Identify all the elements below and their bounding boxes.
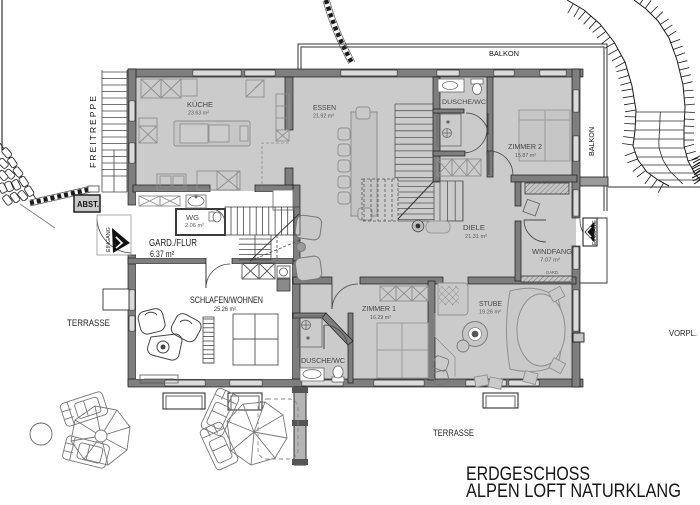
svg-text:EINGANG: EINGANG bbox=[592, 220, 598, 245]
svg-text:23.63 m²: 23.63 m² bbox=[188, 111, 209, 117]
svg-text:25.26 m²: 25.26 m² bbox=[214, 306, 237, 313]
svg-text:ALPEN LOFT NATURKLANG: ALPEN LOFT NATURKLANG bbox=[466, 481, 681, 500]
svg-text:15.87 m²: 15.87 m² bbox=[515, 153, 536, 159]
svg-text:BALKON: BALKON bbox=[489, 49, 519, 58]
svg-text:21.31 m²: 21.31 m² bbox=[465, 234, 487, 240]
svg-text:FREITREPPE: FREITREPPE bbox=[88, 96, 98, 168]
svg-text:WG: WG bbox=[186, 213, 199, 222]
svg-text:DUSCHE/WC: DUSCHE/WC bbox=[301, 356, 346, 365]
svg-text:STUBE: STUBE bbox=[479, 299, 502, 308]
svg-text:ABST.: ABST. bbox=[77, 200, 99, 209]
svg-text:6.37 m²: 6.37 m² bbox=[150, 249, 174, 259]
svg-text:ZIMMER 2: ZIMMER 2 bbox=[508, 142, 542, 151]
svg-text:DIELE: DIELE bbox=[463, 223, 485, 232]
svg-text:ZIMMER 1: ZIMMER 1 bbox=[362, 304, 396, 313]
svg-text:19.26 m²: 19.26 m² bbox=[479, 310, 501, 316]
svg-text:DUSCHE/WC: DUSCHE/WC bbox=[442, 99, 486, 106]
svg-text:WINDFANG: WINDFANG bbox=[532, 247, 572, 256]
svg-text:VORPL.: VORPL. bbox=[669, 328, 697, 338]
svg-text:SCHLAFEN/WOHNEN: SCHLAFEN/WOHNEN bbox=[190, 295, 263, 305]
svg-text:KÜCHE: KÜCHE bbox=[187, 100, 213, 109]
svg-text:BALKON: BALKON bbox=[587, 127, 596, 156]
svg-text:TERRASSE: TERRASSE bbox=[433, 428, 474, 438]
svg-text:16.29 m²: 16.29 m² bbox=[370, 315, 391, 321]
svg-text:TERRASSE: TERRASSE bbox=[67, 317, 110, 328]
svg-text:21.92 m²: 21.92 m² bbox=[313, 114, 334, 120]
svg-text:GARD.: GARD. bbox=[546, 270, 559, 275]
svg-text:7.07 m²: 7.07 m² bbox=[540, 258, 560, 264]
svg-text:2.06 m²: 2.06 m² bbox=[185, 223, 204, 229]
svg-text:GARD./FLUR: GARD./FLUR bbox=[149, 238, 197, 249]
svg-text:ESSEN: ESSEN bbox=[313, 103, 336, 112]
svg-text:EINGANG: EINGANG bbox=[106, 227, 112, 252]
